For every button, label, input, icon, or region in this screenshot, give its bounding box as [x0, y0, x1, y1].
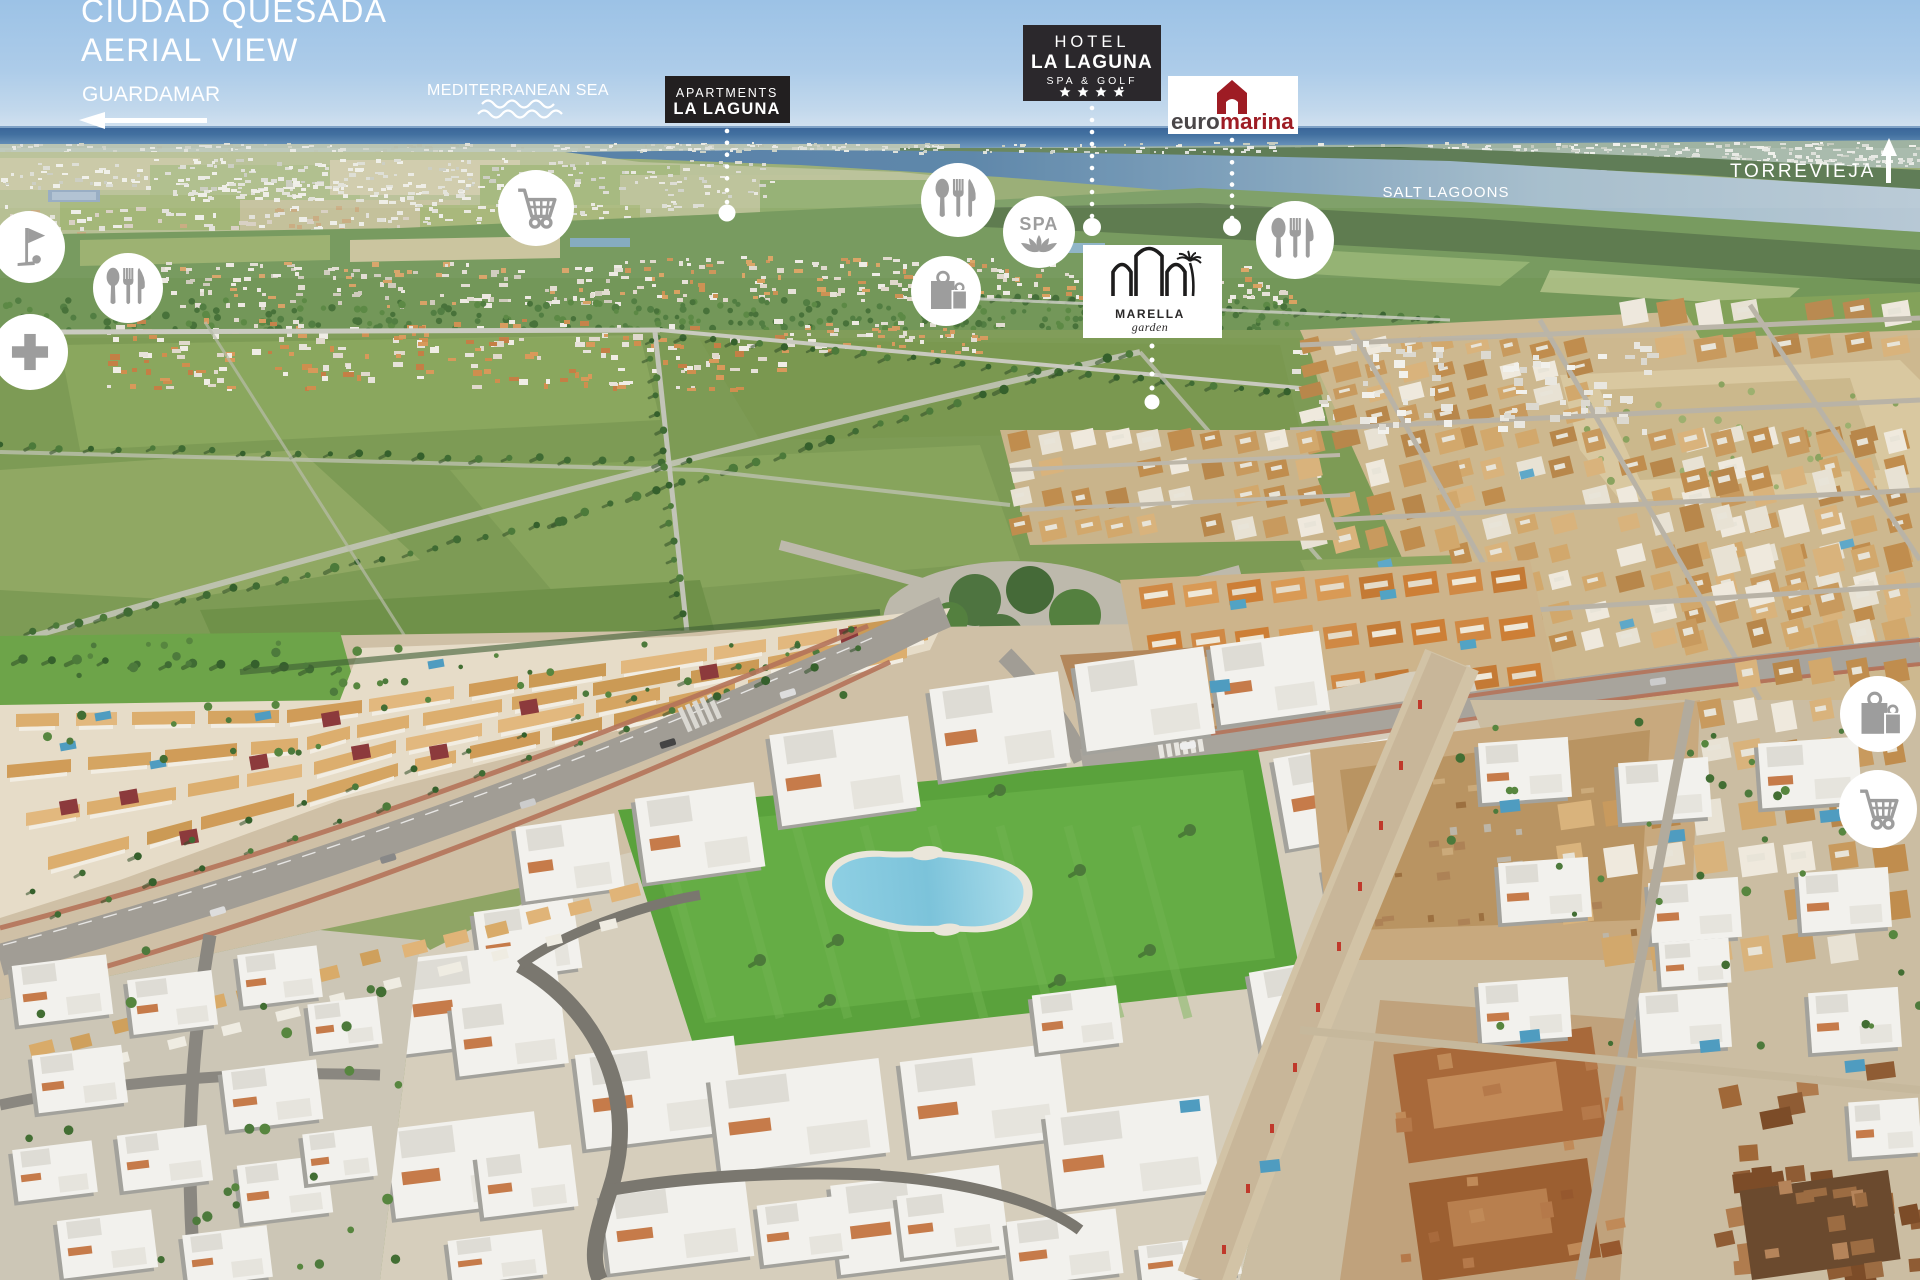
svg-text:LA LAGUNA: LA LAGUNA: [1031, 52, 1153, 73]
svg-text:LA LAGUNA: LA LAGUNA: [673, 100, 780, 118]
svg-text:GUARDAMAR: GUARDAMAR: [82, 83, 220, 106]
svg-text:AERIAL VIEW: AERIAL VIEW: [81, 32, 299, 68]
svg-text:euro: euro: [1171, 109, 1220, 134]
svg-text:garden: garden: [1132, 320, 1169, 334]
svg-text:SALT LAGOONS: SALT LAGOONS: [1382, 184, 1509, 201]
svg-text:APARTMENTS: APARTMENTS: [676, 86, 778, 100]
svg-text:CIUDAD QUESADA: CIUDAD QUESADA: [81, 0, 387, 29]
svg-text:MARELLA: MARELLA: [1115, 307, 1185, 321]
svg-text:SPA & GOLF: SPA & GOLF: [1046, 75, 1137, 87]
svg-text:TORREVIEJA: TORREVIEJA: [1730, 161, 1876, 182]
svg-text:HOTEL: HOTEL: [1054, 33, 1129, 51]
svg-text:SPA: SPA: [1019, 214, 1058, 234]
svg-text:marina: marina: [1220, 109, 1294, 134]
svg-text:MEDITERRANEAN SEA: MEDITERRANEAN SEA: [427, 82, 609, 99]
